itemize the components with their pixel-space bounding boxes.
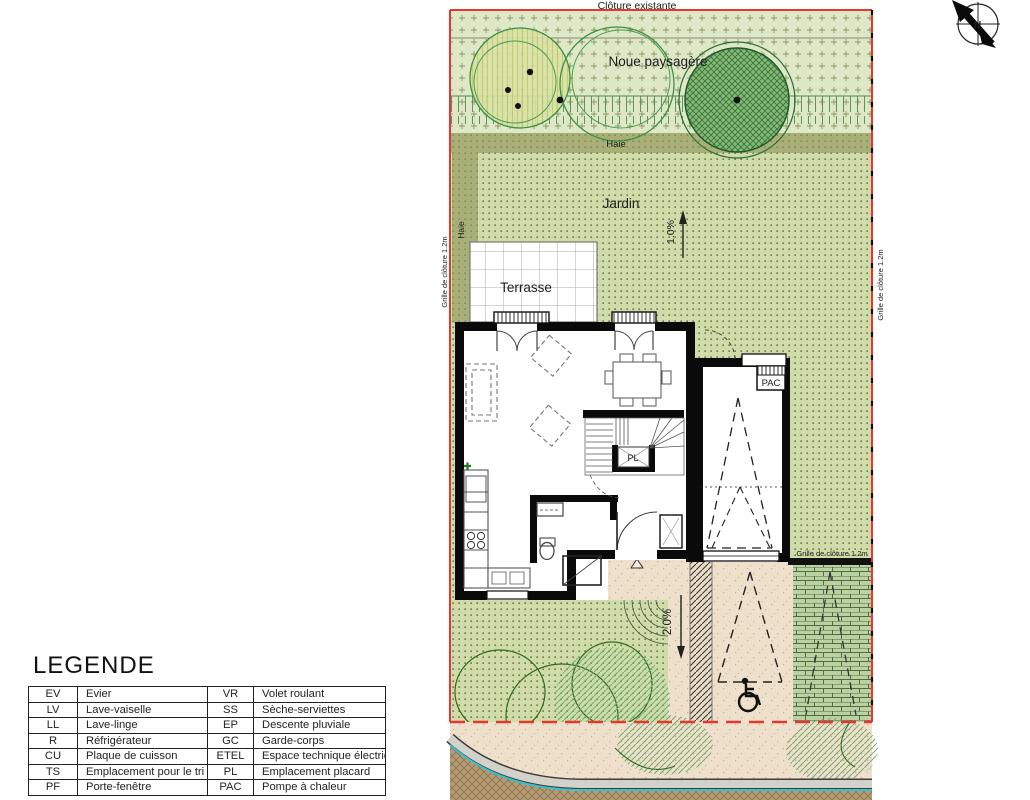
grass-pavers <box>788 558 872 722</box>
grille-cloture-left-label: Grille de clôture 1.2m <box>440 236 449 307</box>
kitchen-window <box>487 591 528 599</box>
legend-abbr: PF <box>29 780 78 796</box>
legend-label: Garde-corps <box>254 733 386 749</box>
north-compass: N <box>948 0 1012 52</box>
terrasse-label: Terrasse <box>500 280 552 295</box>
legend-label: Emplacement pour le tri <box>78 764 208 780</box>
haie-strip-top <box>450 133 872 153</box>
legend-abbr: EP <box>208 718 254 734</box>
slope-top-label: 1.0% <box>665 220 677 244</box>
legend-row: LV Lave-vaiselle SS Sèche-serviettes <box>29 702 386 718</box>
cloture-existante-label: Clôture existante <box>598 0 677 12</box>
legend-row: R Réfrigérateur GC Garde-corps <box>29 733 386 749</box>
legend-label: Plaque de cuisson <box>78 749 208 765</box>
legend-abbr: TS <box>29 764 78 780</box>
jardin-label: Jardin <box>603 196 640 211</box>
legend-label: Pompe à chaleur <box>254 780 386 796</box>
legend-label: Réfrigérateur <box>78 733 208 749</box>
dining-table <box>605 354 671 406</box>
grille-cloture-mid-label: Grille de clôture 1.2m <box>796 549 867 558</box>
site-plan: PL <box>435 0 885 800</box>
closet-pl: PL <box>618 447 649 467</box>
legend-table: EV Evier VR Volet roulant LV Lave-vaisel… <box>28 686 386 796</box>
legend-abbr: VR <box>208 687 254 703</box>
north-letter: N <box>974 20 981 31</box>
legend-abbr: LV <box>29 702 78 718</box>
legend-abbr: ETEL <box>208 749 254 765</box>
legend-label: Porte-fenêtre <box>78 780 208 796</box>
hatched-path-strip <box>690 562 712 722</box>
pl-label: PL <box>627 453 638 463</box>
legend-abbr: CU <box>29 749 78 765</box>
garage-window <box>742 354 786 366</box>
legend-abbr: GC <box>208 733 254 749</box>
legend-row: PF Porte-fenêtre PAC Pompe à chaleur <box>29 780 386 796</box>
pac-label: PAC <box>762 378 781 389</box>
legend-abbr: SS <box>208 702 254 718</box>
legend-abbr: PL <box>208 764 254 780</box>
haie-top-label: Haie <box>606 139 626 150</box>
legend-label: Espace technique électrique <box>254 749 386 765</box>
legend-row: TS Emplacement pour le tri PL Emplacemen… <box>29 764 386 780</box>
legend-abbr: LL <box>29 718 78 734</box>
legend-label: Volet roulant <box>254 687 386 703</box>
haie-left-label: Haie <box>456 221 466 239</box>
legend-title: LEGENDE <box>33 652 155 680</box>
legend-row: CU Plaque de cuisson ETEL Espace techniq… <box>29 749 386 765</box>
legend-label: Descente pluviale <box>254 718 386 734</box>
garage: PAC <box>695 330 790 562</box>
heat-pump-unit: PAC <box>757 366 785 390</box>
legend-abbr: PAC <box>208 780 254 796</box>
grille-cloture-right-label: Grille de clôture 1.2m <box>876 249 885 320</box>
legend-row: LL Lave-linge EP Descente pluviale <box>29 718 386 734</box>
legend-label: Lave-linge <box>78 718 208 734</box>
house: PL <box>455 312 695 600</box>
slope-bottom-label: 2.0% <box>662 609 674 635</box>
legend-abbr: EV <box>29 687 78 703</box>
noue-paysagere-label: Noue paysagère <box>608 54 707 69</box>
legend-label: Lave-vaiselle <box>78 702 208 718</box>
legend-row: EV Evier VR Volet roulant <box>29 687 386 703</box>
legend-label: Evier <box>78 687 208 703</box>
legend-label: Emplacement placard <box>254 764 386 780</box>
legend-label: Sèche-serviettes <box>254 702 386 718</box>
legend-abbr: R <box>29 733 78 749</box>
